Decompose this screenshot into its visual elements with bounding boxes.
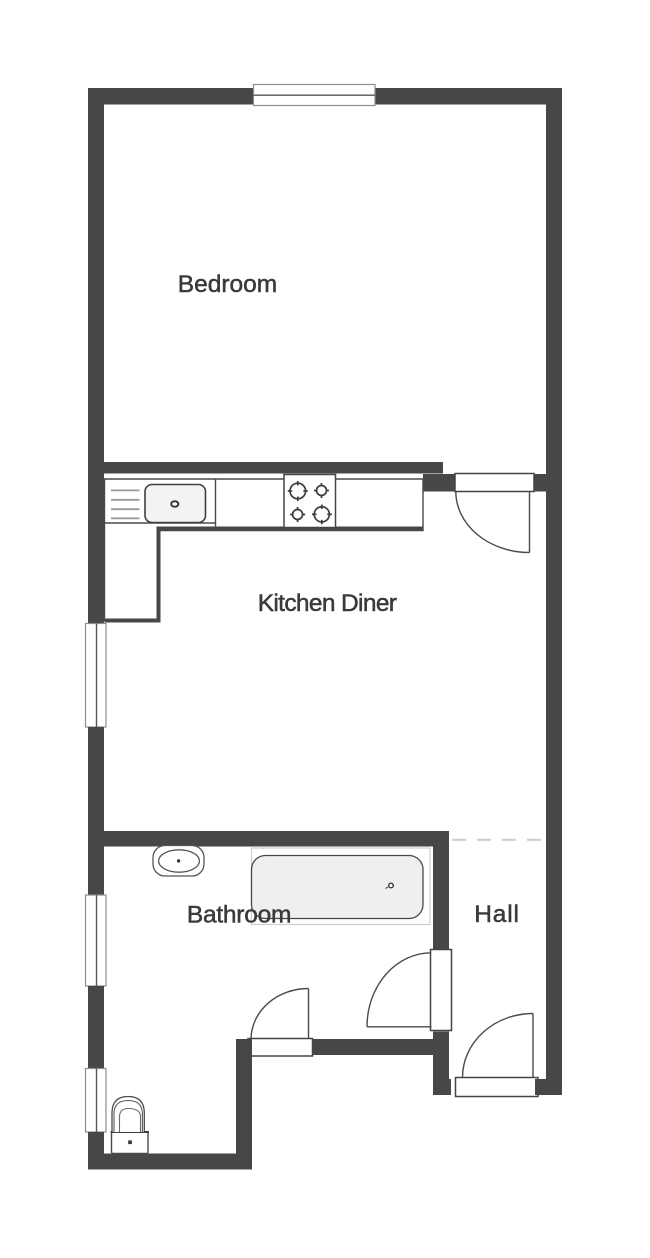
svg-text:Hall: Hall (474, 901, 519, 928)
svg-text:Kitchen Diner: Kitchen Diner (258, 590, 397, 617)
svg-text:Bathroom: Bathroom (187, 902, 291, 929)
svg-text:Bedroom: Bedroom (178, 271, 277, 298)
